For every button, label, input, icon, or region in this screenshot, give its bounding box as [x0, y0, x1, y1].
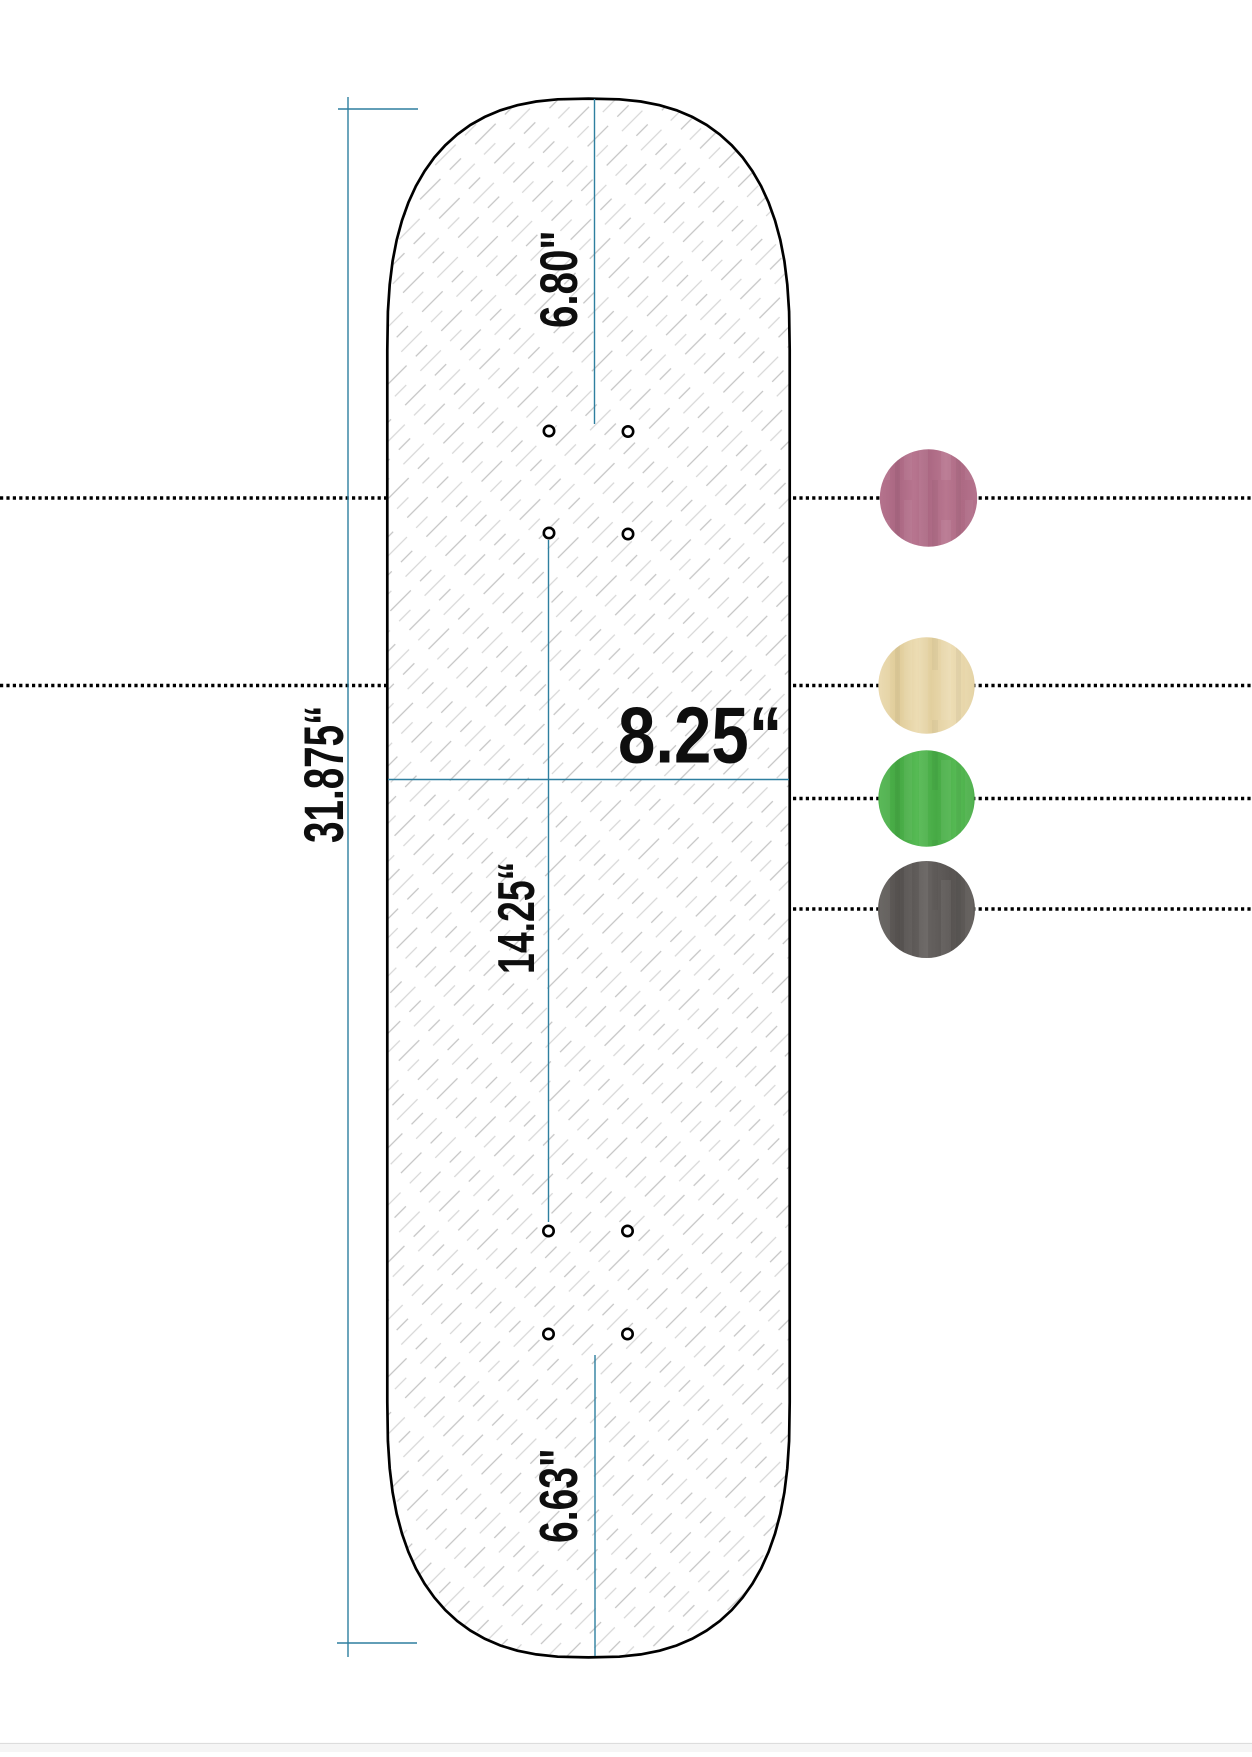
svg-text:6.63": 6.63" — [529, 1448, 588, 1543]
svg-text:14.25“: 14.25“ — [487, 862, 546, 974]
svg-text:31.875“: 31.875“ — [293, 706, 356, 843]
svg-text:8.25“: 8.25“ — [618, 690, 782, 780]
svg-text:6.80": 6.80" — [529, 231, 589, 328]
